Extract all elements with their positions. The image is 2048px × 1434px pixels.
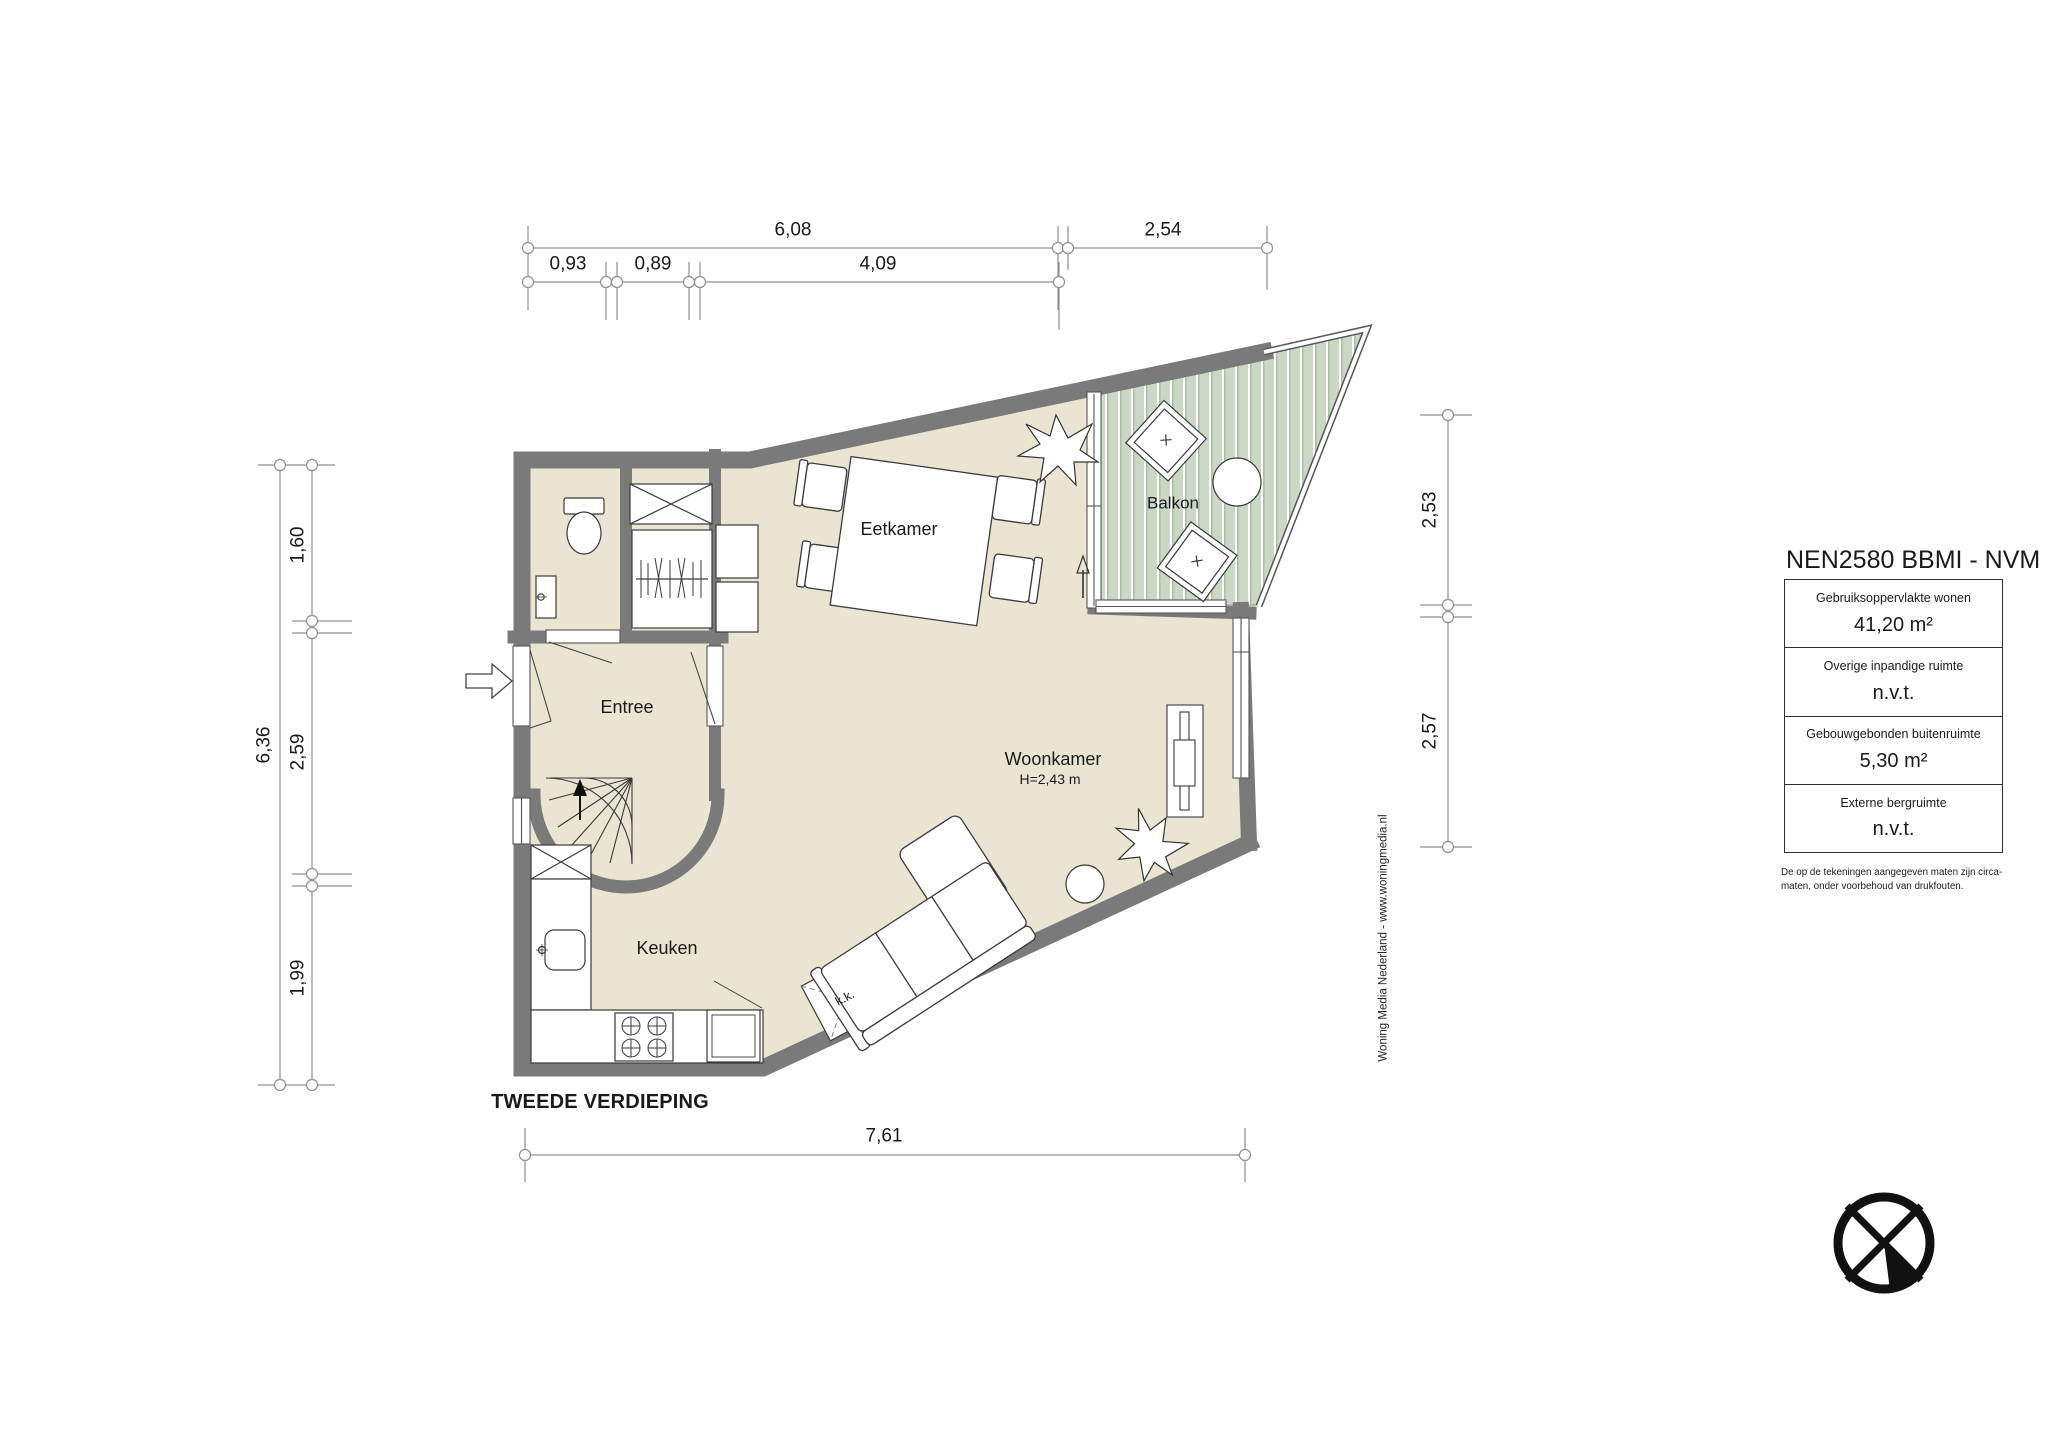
dim-label: 7,61 xyxy=(866,1127,903,1146)
room-label-entree: Entree xyxy=(600,698,653,716)
info-row-value: 41,20 m² xyxy=(1854,614,1933,637)
room-label-keuken: Keuken xyxy=(636,939,697,957)
front-door xyxy=(513,646,530,726)
dim-label: 6,36 xyxy=(255,727,274,764)
compass-north-icon xyxy=(1838,1197,1930,1290)
floor-title: TWEEDE VERDIEPING xyxy=(491,1092,709,1112)
hall-cabinet-icon xyxy=(716,525,758,578)
dining-chair-icon xyxy=(989,552,1043,604)
info-row-value: n.v.t. xyxy=(1873,682,1915,705)
info-row-label: Overige inpandige ruimte xyxy=(1824,659,1964,673)
kitchen-sink-icon xyxy=(545,930,585,970)
wc-bowl-icon xyxy=(567,512,601,554)
dim-label: 6,08 xyxy=(775,221,812,240)
info-panel-footnote: De op de tekeningen aangegeven maten zij… xyxy=(1781,866,2019,893)
info-row: Gebouwgebonden buitenruimte 5,30 m² xyxy=(1785,717,2002,785)
floorplan-drawing xyxy=(0,0,2048,1434)
room-label-woonkamer: Woonkamer xyxy=(1005,750,1102,768)
dim-label: 2,57 xyxy=(1421,713,1440,750)
room-height-label: H=2,43 m xyxy=(1019,772,1080,786)
info-row-value: n.v.t. xyxy=(1873,818,1915,841)
room-label-balkon: Balkon xyxy=(1147,495,1199,512)
info-row-label: Gebruiksoppervlakte wonen xyxy=(1816,591,1971,605)
dim-label: 2,53 xyxy=(1421,492,1440,529)
balcony-table-icon xyxy=(1213,458,1261,506)
dim-label: 1,99 xyxy=(289,960,308,997)
dim-label: 0,93 xyxy=(550,255,587,274)
floorplan-page: 6,08 2,54 0,93 0,89 4,09 6,36 1,60 2,59 … xyxy=(0,0,2048,1434)
room-label-eetkamer: Eetkamer xyxy=(860,520,937,538)
dim-label: 4,09 xyxy=(860,255,897,274)
info-row: Gebruiksoppervlakte wonen 41,20 m² xyxy=(1785,580,2002,648)
dim-label: 1,60 xyxy=(289,527,308,564)
info-row: Overige inpandige ruimte n.v.t. xyxy=(1785,648,2002,716)
radiator-icon xyxy=(1167,705,1203,817)
info-row-label: Externe bergruimte xyxy=(1840,796,1946,810)
hall-cabinet-icon xyxy=(716,582,758,632)
livingroom-door xyxy=(707,646,723,726)
dining-table-icon xyxy=(830,457,997,626)
side-table-icon xyxy=(1066,865,1104,903)
dim-label: 2,59 xyxy=(289,734,308,771)
info-panel-table: Gebruiksoppervlakte wonen 41,20 m² Overi… xyxy=(1784,579,2003,853)
info-row-value: 5,30 m² xyxy=(1860,750,1928,773)
info-row-label: Gebouwgebonden buitenruimte xyxy=(1806,727,1980,741)
entrance-direction-arrow-icon xyxy=(466,664,512,698)
info-panel-title: NEN2580 BBMI - NVM xyxy=(1786,546,2014,575)
dim-label: 0,89 xyxy=(635,255,672,274)
info-row: Externe bergruimte n.v.t. xyxy=(1785,785,2002,852)
dim-label: 2,54 xyxy=(1145,221,1182,240)
toilet-door xyxy=(546,630,620,643)
dining-chair-icon xyxy=(992,473,1046,525)
dining-chair-icon xyxy=(794,460,848,512)
watermark-text: Woning Media Nederland - www.woningmedia… xyxy=(1378,814,1390,1061)
